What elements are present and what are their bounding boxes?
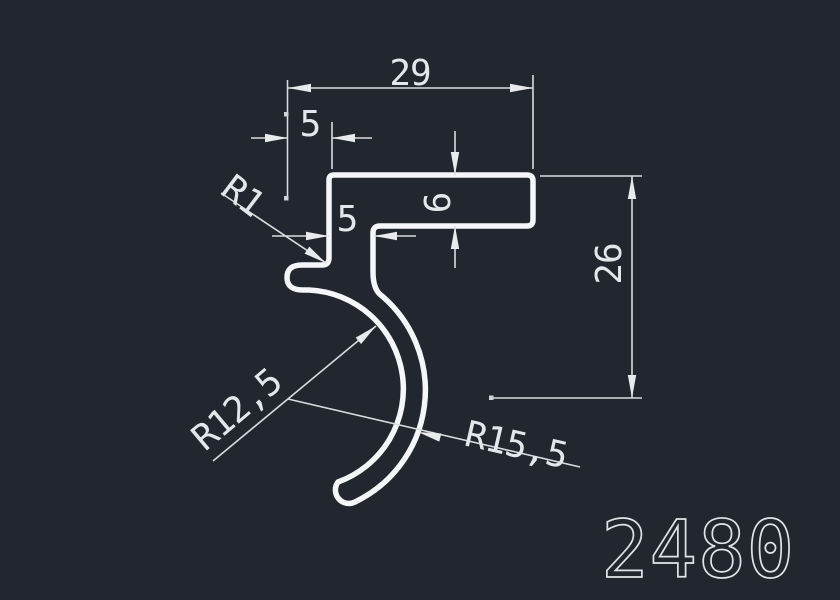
profile-number: 2480	[601, 504, 795, 596]
dim-top-offset-label: 5	[300, 104, 321, 145]
dim-outer-radius-label: R15,5	[461, 414, 571, 477]
profile-drawing: 29 5 6 5 26 R1 R12,5 R15,5 2480	[0, 0, 840, 600]
dim-flange-thickness-label: 6	[418, 193, 459, 214]
dim-overall-width-label: 29	[389, 53, 430, 94]
dim-leg-offset-label: 5	[337, 199, 358, 240]
dim-corner-radius-label: R1	[214, 167, 272, 225]
dim-overall-height-label: 26	[589, 243, 630, 284]
cad-drawing-canvas: 29 5 6 5 26 R1 R12,5 R15,5 2480	[0, 0, 840, 600]
